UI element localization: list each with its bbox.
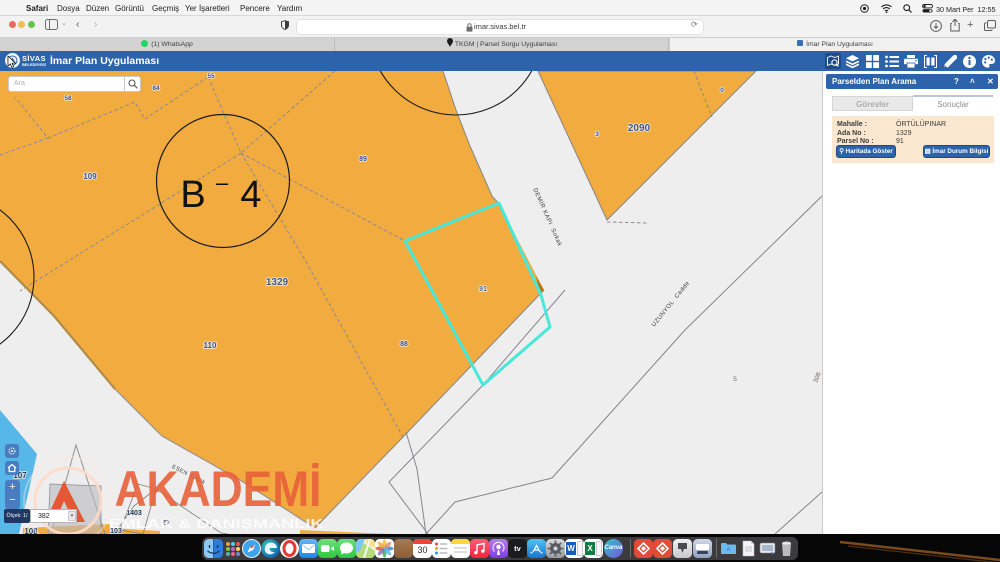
svg-text:A: A (726, 548, 730, 554)
svg-text:5: 5 (733, 376, 737, 383)
svg-text:0: 0 (720, 87, 724, 94)
svg-text:91: 91 (479, 286, 487, 293)
svg-text:4: 4 (240, 174, 261, 216)
svg-text:AKADEMİ: AKADEMİ (115, 461, 322, 517)
svg-text:EMLAK & DANIŞMANLIK: EMLAK & DANIŞMANLIK (109, 516, 325, 531)
svg-text:89: 89 (359, 156, 367, 163)
svg-text:1329: 1329 (266, 277, 289, 288)
svg-text:110: 110 (204, 341, 217, 350)
svg-text:88: 88 (400, 341, 408, 348)
svg-text:B: B (180, 174, 205, 216)
svg-text:3: 3 (595, 131, 599, 138)
svg-text:58: 58 (64, 95, 72, 102)
svg-text:2090: 2090 (628, 123, 651, 134)
svg-text:55: 55 (207, 73, 215, 80)
svg-text:84: 84 (152, 85, 160, 92)
svg-text:–: – (216, 170, 229, 195)
svg-text:109: 109 (83, 172, 97, 181)
